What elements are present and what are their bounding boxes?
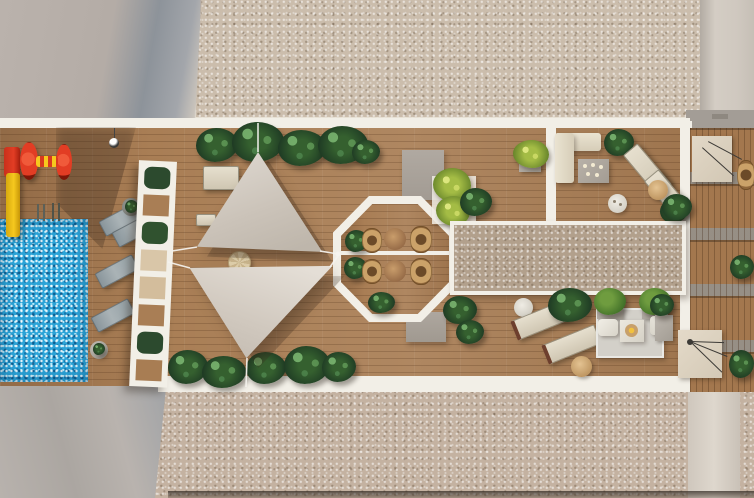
roof-strip-top-right (700, 0, 754, 128)
roof-edge-shadow (168, 491, 754, 498)
planter-pot (655, 315, 673, 341)
pathway-bottom-right (688, 392, 740, 498)
cup (613, 200, 616, 203)
roof-vent (712, 114, 728, 119)
gravel-panel (450, 221, 686, 295)
coffee-table (578, 159, 609, 183)
fire-bowl (625, 324, 638, 337)
candle (586, 172, 590, 176)
stair-hatch (678, 330, 722, 378)
candle (583, 164, 587, 168)
sail-ropes (130, 115, 480, 405)
tea-table (648, 180, 668, 200)
fire-table (620, 320, 644, 342)
pool-ladder-rail (43, 204, 45, 221)
candle (595, 173, 599, 177)
adjacent-roof-top-left (0, 0, 200, 128)
pendant-light (109, 138, 119, 148)
play-roller-disc (56, 144, 72, 180)
cup (619, 203, 622, 206)
slide-chute (6, 173, 20, 237)
pool-ladder-rail (52, 203, 54, 221)
pool-ladder-rail (58, 203, 60, 221)
rooftop-render (0, 0, 754, 498)
roof-band-right (686, 110, 754, 128)
palm-plant (513, 140, 549, 168)
play-roller-axle (36, 156, 58, 167)
swimming-pool (0, 219, 88, 382)
corner-sofa (555, 133, 574, 183)
tea-table (571, 356, 592, 377)
gravel-roof-top (192, 0, 712, 121)
wicker-chair (737, 160, 754, 190)
candle (591, 163, 595, 167)
tea-table (608, 194, 627, 213)
armchair (598, 319, 618, 336)
stair-hatch (692, 136, 732, 182)
pool-ladder-rail (37, 204, 39, 221)
gravel-roof-bottom (155, 390, 754, 498)
candle (599, 165, 603, 169)
